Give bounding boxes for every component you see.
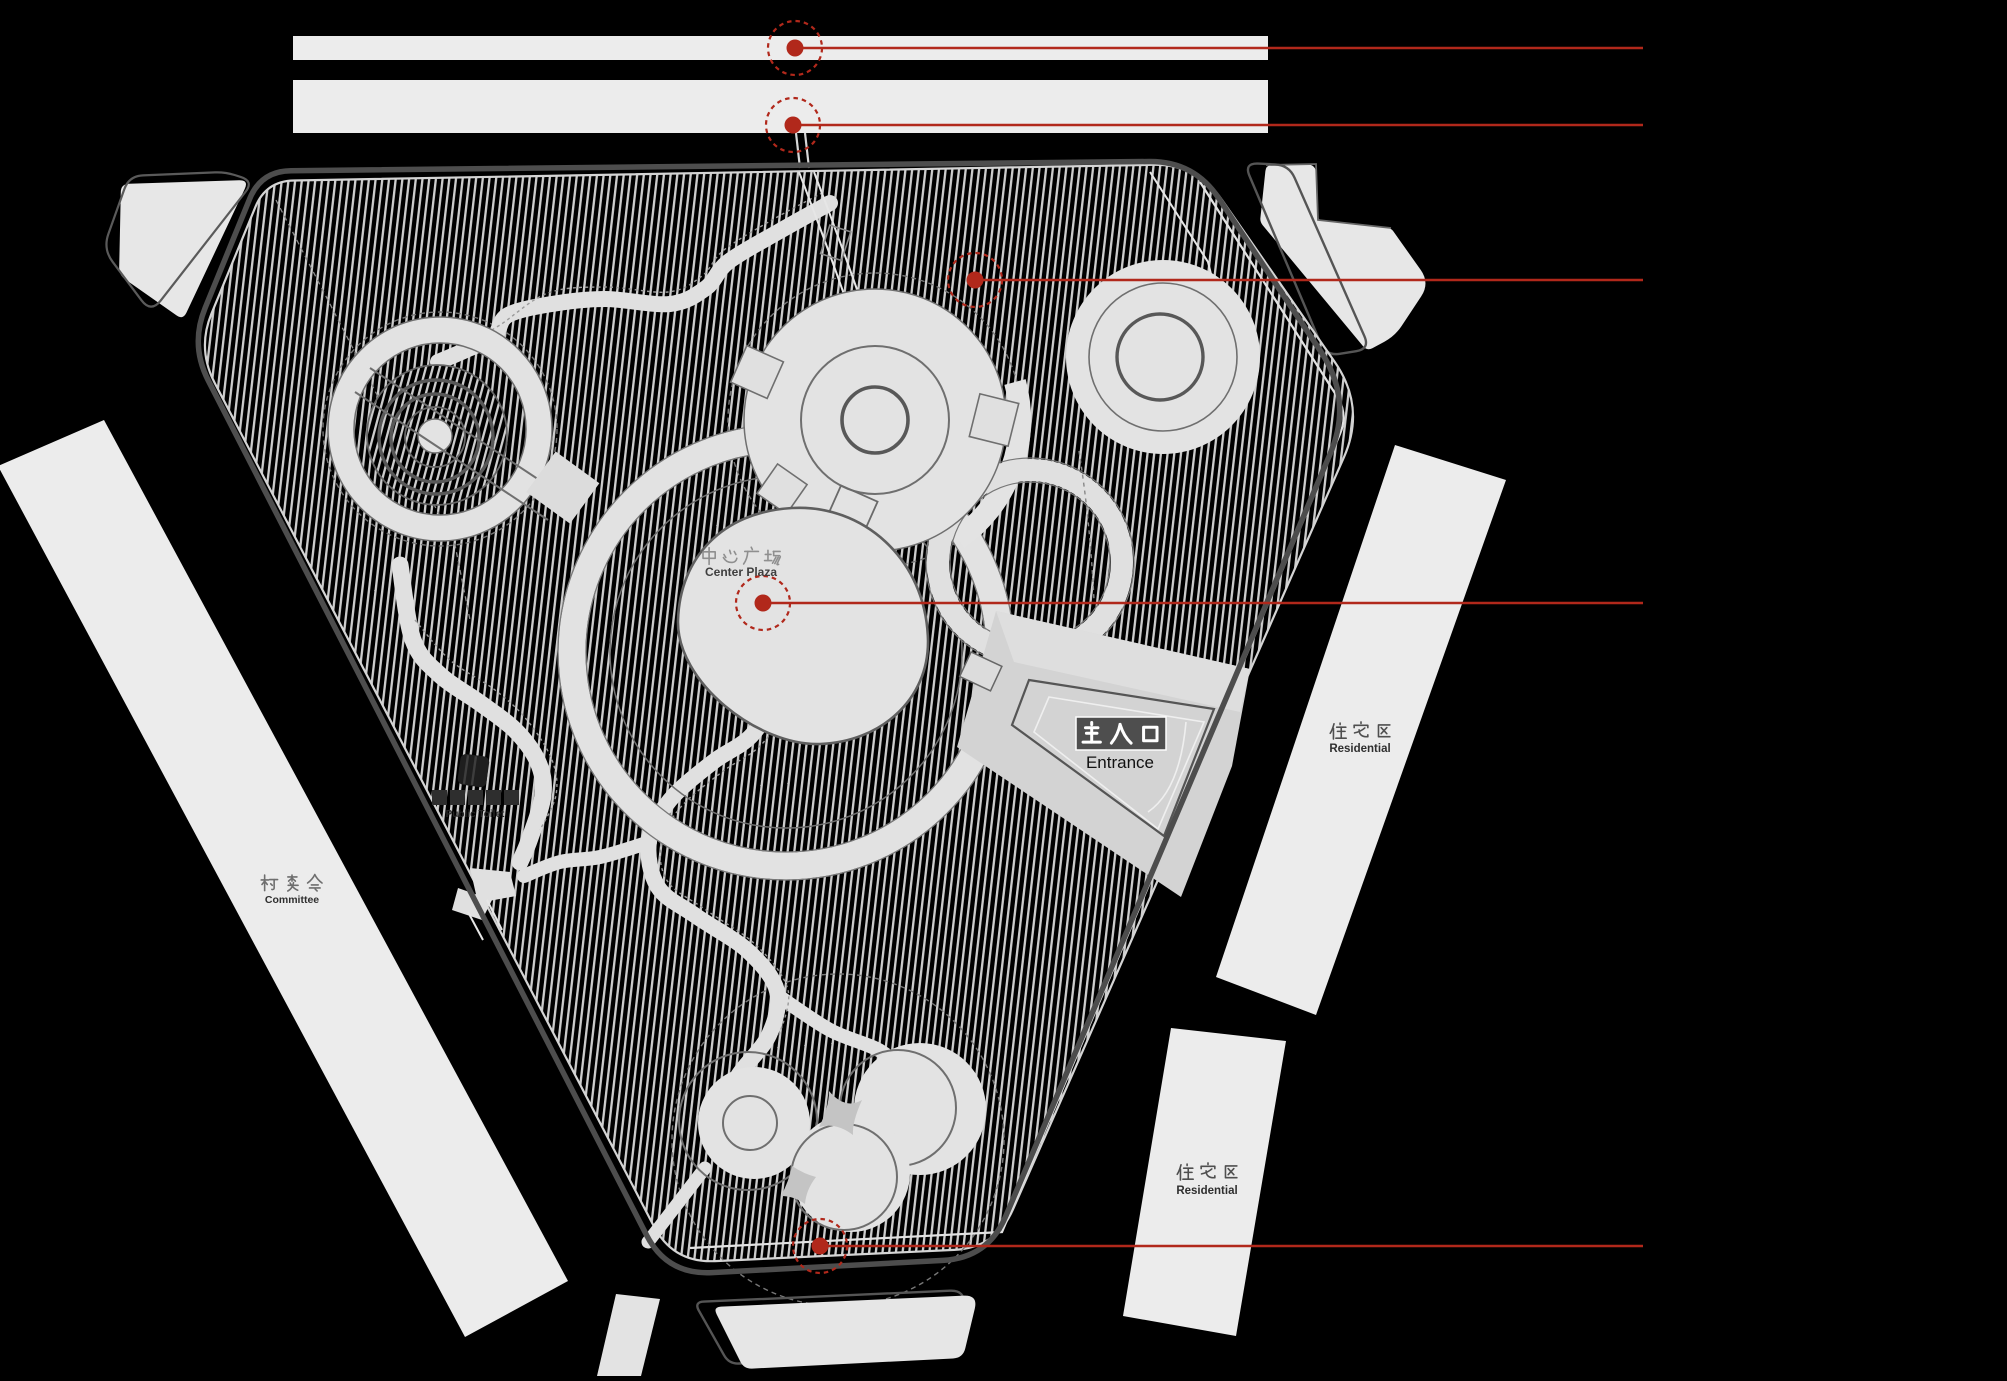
svg-text:Residential: Residential — [1329, 743, 1390, 755]
svg-text:Entrance: Entrance — [1086, 753, 1154, 772]
svg-text:Committee: Committee — [265, 894, 319, 906]
svg-text:Center Plaza: Center Plaza — [705, 565, 777, 579]
svg-text:Residential: Residential — [1176, 1185, 1237, 1197]
svg-text:Public Toilet: Public Toilet — [446, 809, 505, 820]
